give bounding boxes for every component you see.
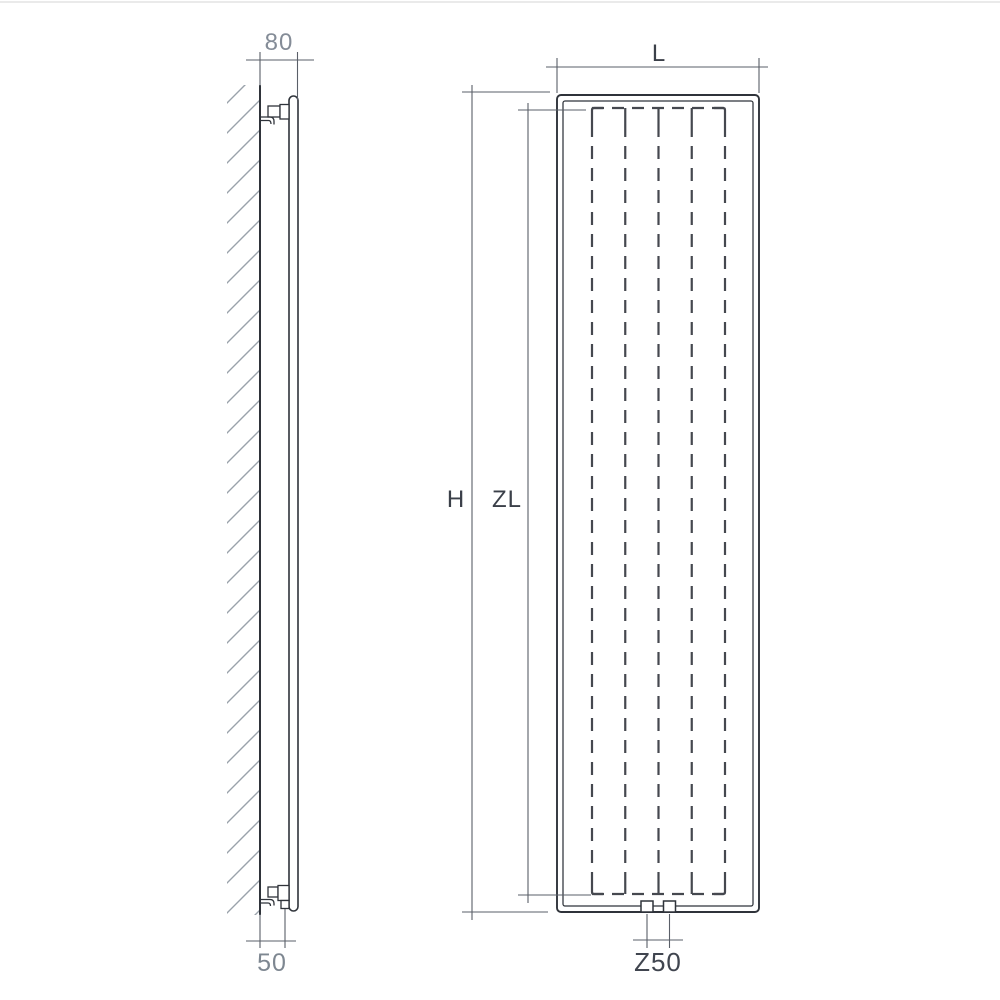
side-view: 80 50 bbox=[227, 29, 314, 977]
technical-drawing-canvas: 80 50 bbox=[0, 0, 1000, 1000]
dimension-Z50 bbox=[633, 914, 683, 948]
dim-50-label: 50 bbox=[257, 949, 287, 977]
radiator-panel-side bbox=[289, 96, 298, 911]
dim-Z50-label: Z50 bbox=[634, 947, 682, 977]
dim-H-label: H bbox=[447, 486, 465, 513]
valve-connection bbox=[281, 901, 289, 909]
front-view: L H ZL Z50 bbox=[447, 40, 768, 977]
dim-ZL-label: ZL bbox=[492, 486, 522, 513]
wall-hatch bbox=[227, 85, 260, 915]
radiator-dimension-diagram: 80 50 bbox=[0, 0, 1000, 1000]
dim-80-label: 80 bbox=[265, 29, 294, 56]
mounting-bracket-bottom bbox=[260, 886, 289, 909]
mounting-bracket-top bbox=[260, 105, 289, 125]
dim-L-label: L bbox=[652, 40, 666, 67]
